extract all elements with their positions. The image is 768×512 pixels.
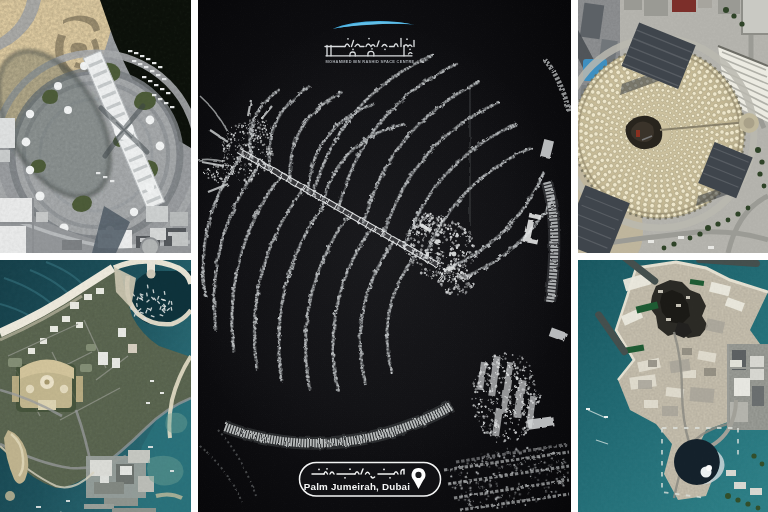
svg-text:MOHAMMED BIN RASHID SPACE CENT: MOHAMMED BIN RASHID SPACE CENTRE: [325, 59, 414, 64]
svg-text:Palm Jumeirah, Dubai: Palm Jumeirah, Dubai: [304, 481, 410, 492]
